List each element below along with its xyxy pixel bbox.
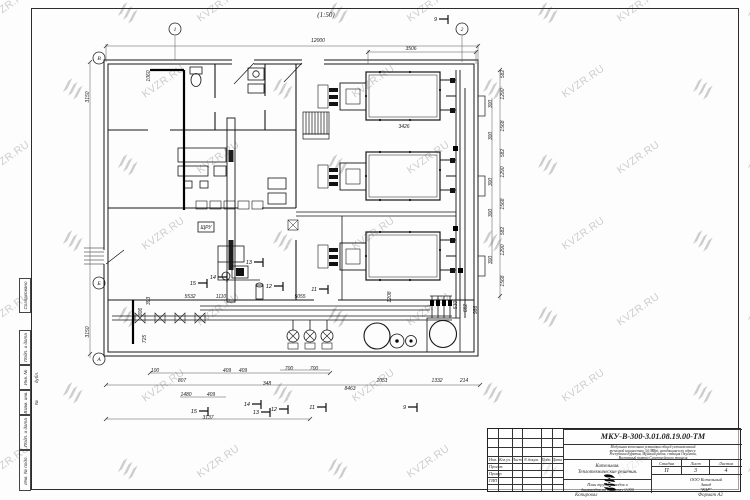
dimension-label: 582 xyxy=(500,227,506,236)
dimension-label: 409 xyxy=(207,392,216,398)
dimension-label: 300 xyxy=(488,100,494,109)
dimension-label: 5055 xyxy=(294,294,305,300)
dimension-label: 582 xyxy=(500,70,506,79)
dimension-label: 700 xyxy=(285,366,294,372)
dimension-label: 214 xyxy=(459,378,469,384)
section-flag: 9 xyxy=(434,15,448,24)
svg-text:9: 9 xyxy=(434,17,437,23)
svg-text:14: 14 xyxy=(244,402,250,408)
dimension-label: 5532 xyxy=(184,294,195,300)
dimension-label: 3150 xyxy=(85,326,91,337)
tb-col-koluch: Кол.уч. xyxy=(498,457,512,462)
svg-text:Б: Б xyxy=(96,281,101,287)
stairs xyxy=(303,112,329,139)
dimension-label: 582 xyxy=(500,149,506,158)
dimension-label: 1208 xyxy=(387,291,393,302)
boiler-unit-2 xyxy=(318,151,456,201)
company-logo-icon xyxy=(602,474,618,491)
right-pipe-runs xyxy=(453,70,465,318)
tb-company-line3: "КЗР" xyxy=(670,487,742,492)
tb-sheets-header: Листов xyxy=(709,459,742,466)
svg-text:14: 14 xyxy=(210,275,216,281)
section-flag: 15 xyxy=(190,279,207,288)
dimension-label: 300 xyxy=(488,209,494,218)
dimension-label: 409 xyxy=(223,368,232,374)
dimension-label: 1568 xyxy=(500,198,506,209)
svg-text:12: 12 xyxy=(266,284,272,290)
dimension-label: ЩРУ xyxy=(201,225,213,231)
tb-row-proekt: Проект. xyxy=(489,464,512,469)
dimension-label: 725 xyxy=(142,335,148,344)
interior-piping xyxy=(133,70,184,344)
svg-text:15: 15 xyxy=(190,281,197,287)
section-flag: 11 xyxy=(309,403,326,412)
tb-col-list: Лист xyxy=(512,457,522,462)
tb-sheets-value: 4 xyxy=(709,466,742,474)
tb-col-dokum: N докум. xyxy=(522,457,541,462)
section-flag: 13 xyxy=(253,408,270,417)
dimension-label: 8463 xyxy=(344,386,355,392)
dimension-label: 12000 xyxy=(311,38,325,44)
dimension-label: 682 xyxy=(463,304,469,313)
section-flag: 14 xyxy=(210,273,227,282)
svg-text:9: 9 xyxy=(403,405,406,411)
section-flag: 12 xyxy=(271,405,288,414)
tb-stage-value: П xyxy=(651,466,681,474)
dimension-label: 1290 xyxy=(500,166,506,177)
section-flag: 11 xyxy=(311,285,328,294)
dimension-label: 3150 xyxy=(85,91,91,102)
left-equipment xyxy=(218,246,263,299)
dimension-label: 300 xyxy=(488,132,494,141)
dimension-label: 1332 xyxy=(431,378,442,384)
svg-text:1: 1 xyxy=(174,27,177,33)
dimension-label: 2051 xyxy=(375,378,387,384)
room-fixtures xyxy=(178,67,298,232)
tb-gridline xyxy=(488,447,563,448)
dimension-label: 100 xyxy=(151,368,160,374)
tb-sheet-value: 3 xyxy=(681,466,709,474)
plan-drawing: 1200035063426106031503150393306725553211… xyxy=(0,0,750,500)
dimension-label: 1060 xyxy=(146,70,152,81)
dimension-label: 530 xyxy=(453,301,459,310)
tb-row-gip: ГИП xyxy=(489,478,512,483)
tb-description: Модульная котельная установка общей уста… xyxy=(563,444,742,459)
tb-col-izm: Изм. xyxy=(488,457,498,462)
tb-sheet-header: Лист xyxy=(681,459,709,466)
axis-bubble: А xyxy=(93,353,105,365)
axis-bubble: 2 xyxy=(456,23,468,35)
dimension-label: 300 xyxy=(488,178,494,187)
dimension-label: 1290 xyxy=(500,88,506,99)
axis-bubble: В xyxy=(93,52,105,64)
tb-doc-number: МКУ-В-300-3.01.08.19.00-ТМ xyxy=(563,429,742,444)
svg-text:11: 11 xyxy=(311,287,317,293)
tb-col-data: Дата xyxy=(552,457,563,462)
dimension-label: 986 xyxy=(473,306,479,315)
tb-col-podp: Подп. xyxy=(541,457,552,462)
dimension-label: 306 xyxy=(138,308,144,317)
format-label: Формат А2 xyxy=(698,493,723,498)
section-flag: 9 xyxy=(403,403,417,412)
svg-text:В: В xyxy=(97,56,101,62)
dimension-label: 3506 xyxy=(405,46,416,52)
tb-gridline xyxy=(488,438,563,439)
svg-text:15: 15 xyxy=(191,409,198,415)
building-walls xyxy=(84,60,485,356)
dimension-label: 1568 xyxy=(500,120,506,131)
dimension-label: 300 xyxy=(488,256,494,265)
dimension-label: 1290 xyxy=(500,244,506,255)
axis-bubble: 1 xyxy=(169,23,181,35)
svg-text:2: 2 xyxy=(461,27,464,33)
dimension-label: 1110 xyxy=(216,294,227,300)
tb-gridline xyxy=(488,484,563,485)
dimension-label: 348 xyxy=(263,381,272,387)
tb-company: ООО Котельный Завод "КЗР" xyxy=(651,474,742,493)
drawing-sheet: KVZR.RUKVZR.RUKVZR.RUKVZR.RUKVZR.RUKVZR.… xyxy=(0,0,750,500)
svg-text:13: 13 xyxy=(253,410,260,416)
dimension-label: 700 xyxy=(310,366,319,372)
dimension-label: 1480 xyxy=(180,392,191,398)
axis-bubble: Б xyxy=(93,277,105,289)
dimension-label: 1568 xyxy=(500,275,506,286)
bottom-equipment xyxy=(112,296,460,352)
tb-row-prover: Провер. xyxy=(489,471,512,476)
section-flag: 14 xyxy=(244,400,261,409)
boiler-unit-1 xyxy=(318,71,456,121)
section-flag: 13 xyxy=(246,258,263,267)
duct-column xyxy=(227,118,235,302)
svg-text:11: 11 xyxy=(309,405,315,411)
svg-text:13: 13 xyxy=(246,260,253,266)
dimension-label: 393 xyxy=(146,297,152,306)
boiler-unit-3 xyxy=(318,231,456,281)
dimension-label: 807 xyxy=(178,378,187,384)
svg-text:А: А xyxy=(96,357,101,363)
section-flag: 12 xyxy=(266,282,283,291)
dimension-label: 409 xyxy=(239,368,248,374)
svg-text:12: 12 xyxy=(271,407,277,413)
tb-stage-header: Стадия xyxy=(651,459,681,466)
copy-label: Копировал xyxy=(575,493,597,498)
dimension-label: 3426 xyxy=(398,124,409,130)
